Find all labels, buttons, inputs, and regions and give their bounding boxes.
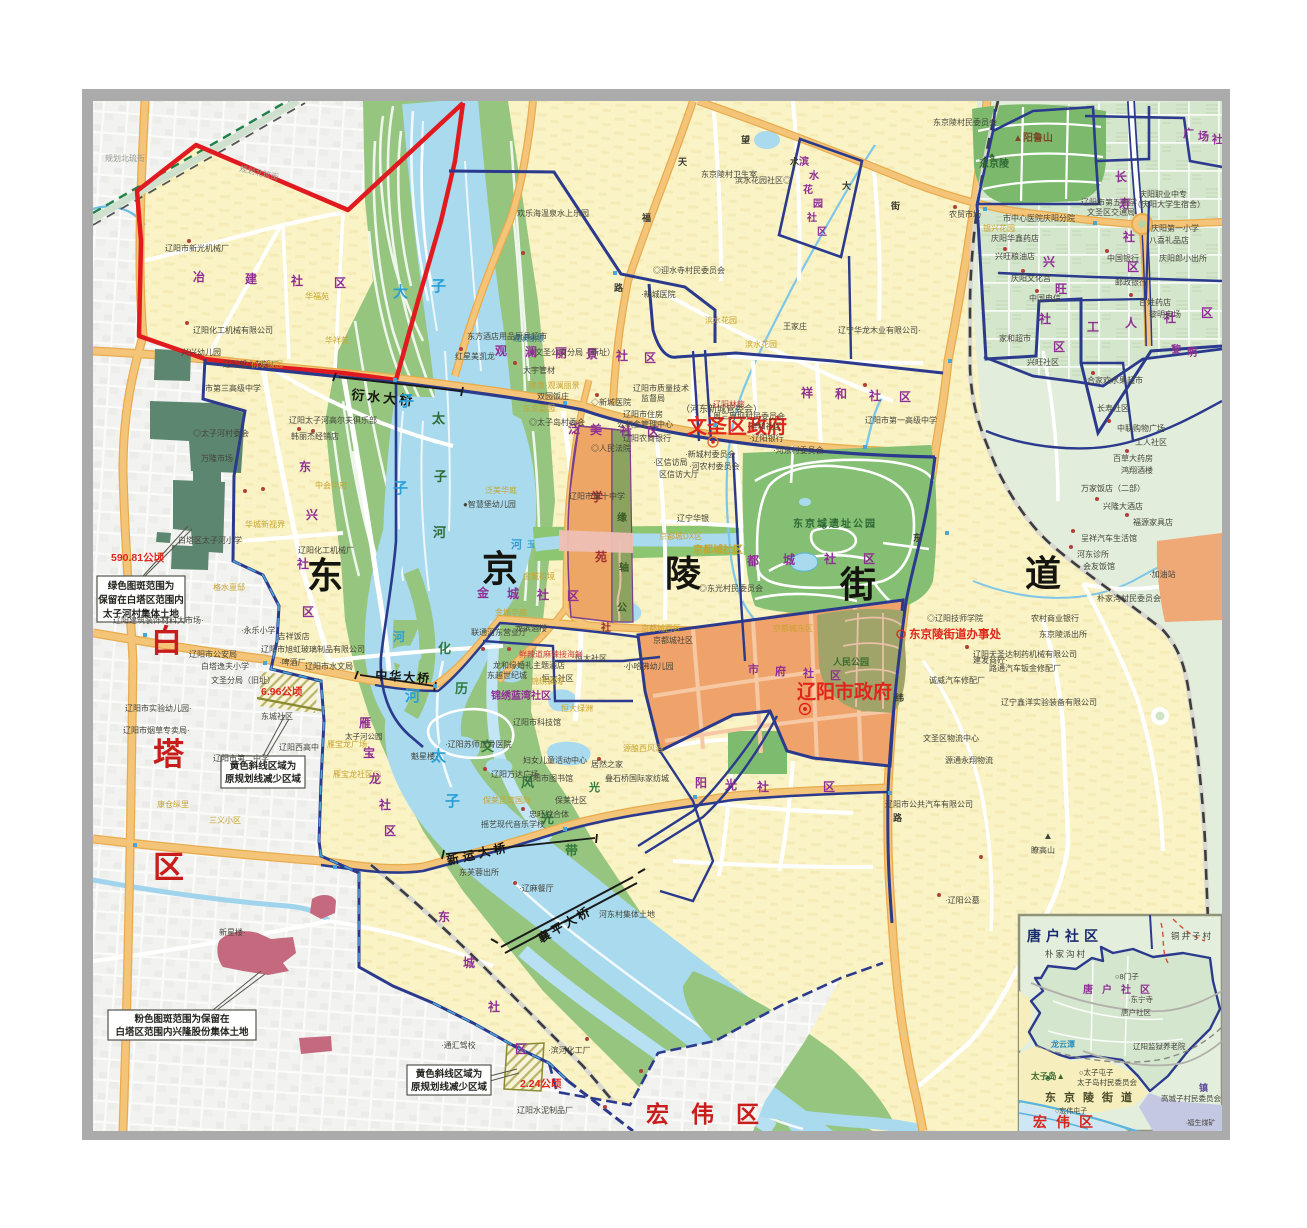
svg-text:河: 河 [433, 525, 446, 540]
svg-text:雁宝龙社区◎: 雁宝龙社区◎ [333, 769, 381, 779]
svg-text:带: 带 [565, 843, 578, 858]
svg-text:·新城医院: ·新城医院 [641, 289, 676, 299]
svg-text:长: 长 [1115, 169, 1128, 184]
svg-text:区: 区 [334, 276, 346, 290]
svg-text:欢乐海温泉水上乐园: 欢乐海温泉水上乐园 [517, 208, 589, 218]
svg-text:社: 社 [600, 621, 611, 634]
svg-text:辽阳农商银行: 辽阳农商银行 [623, 433, 671, 443]
svg-text:▲阳鲁山: ▲阳鲁山 [1013, 131, 1053, 144]
svg-text:和: 和 [834, 386, 847, 401]
svg-text:居然之家: 居然之家 [591, 759, 623, 769]
svg-text:保莱蓝湾国际: 保莱蓝湾国际 [483, 795, 531, 805]
svg-text:河: 河 [511, 537, 522, 551]
svg-text:绿色图斑范围为: 绿色图斑范围为 [108, 580, 175, 592]
svg-text:区: 区 [384, 824, 396, 838]
svg-text:社: 社 [487, 999, 500, 1014]
svg-text:辽阳化工机械厂: 辽阳化工机械厂 [298, 545, 354, 555]
svg-text:·区信访局: ·区信访局 [653, 457, 688, 467]
svg-text:590.81公顷: 590.81公顷 [111, 552, 165, 564]
svg-text:♣: ♣ [821, 521, 827, 531]
svg-text:太: 太 [431, 411, 446, 426]
svg-text:宏: 宏 [646, 1101, 669, 1127]
svg-text:水: 水 [808, 169, 820, 182]
svg-text:工: 工 [1087, 320, 1099, 334]
svg-text:6.96公顷: 6.96公顷 [261, 686, 303, 698]
svg-text:园: 园 [813, 198, 823, 210]
svg-text:街: 街 [839, 564, 876, 605]
svg-text:区: 区 [644, 351, 656, 365]
svg-text:建: 建 [244, 271, 258, 286]
svg-text:会友饭馆: 会友饭馆 [1083, 561, 1115, 571]
svg-text:庆阳华鑫药店: 庆阳华鑫药店 [991, 233, 1039, 243]
svg-text:八喜礼品店: 八喜礼品店 [1149, 235, 1189, 245]
svg-text:社: 社 [536, 587, 549, 602]
svg-text:邮政银行: 邮政银行 [1115, 277, 1147, 287]
svg-text:中国电信: 中国电信 [1029, 293, 1061, 303]
svg-text:家和超市: 家和超市 [999, 333, 1031, 343]
svg-text:场: 场 [1198, 129, 1209, 143]
svg-text:社: 社 [823, 551, 836, 566]
svg-text:辽宁华银: 辽宁华银 [677, 513, 709, 523]
svg-text:摇艺现代音乐学校: 摇艺现代音乐学校 [481, 819, 545, 829]
svg-text:·加油站: ·加油站 [1149, 569, 1176, 579]
svg-text:·辽阳公墓: ·辽阳公墓 [945, 895, 980, 905]
svg-text:三义小区: 三义小区 [209, 816, 241, 825]
svg-text:·东宁寺: ·东宁寺 [1128, 994, 1153, 1004]
svg-text:东: 东 [438, 909, 450, 924]
svg-text:金城华庭: 金城华庭 [495, 607, 527, 617]
svg-text:◎太子河村委会: ◎太子河村委会 [193, 428, 249, 438]
svg-text:京都城DX区: 京都城DX区 [659, 531, 702, 541]
svg-text:恒大绿洲: 恒大绿洲 [561, 703, 593, 713]
svg-text:中国银行: 中国银行 [1107, 253, 1139, 263]
svg-text:保留在白塔区范围内: 保留在白塔区范围内 [97, 594, 184, 606]
svg-text:东: 东 [307, 555, 343, 596]
svg-text:花: 花 [803, 183, 813, 196]
svg-text:辽阳太子河高尔夫俱乐部: 辽阳太子河高尔夫俱乐部 [289, 415, 377, 425]
svg-text:白: 白 [151, 624, 182, 659]
svg-text:辽阳市公安局: 辽阳市公安局 [189, 649, 237, 659]
svg-text:区: 区 [515, 1042, 527, 1056]
svg-text:叠石桥国际家纺城: 叠石桥国际家纺城 [605, 773, 669, 783]
svg-text:辽阳市第一高级中学: 辽阳市第一高级中学 [865, 415, 937, 425]
svg-text:冶: 冶 [193, 269, 205, 284]
svg-text:东: 东 [913, 532, 922, 543]
svg-text:河东诊所: 河东诊所 [1077, 549, 1109, 559]
svg-text:王家庄: 王家庄 [783, 321, 807, 331]
svg-text:辽阳化工机械有限公司: 辽阳化工机械有限公司 [193, 325, 273, 335]
svg-text:原规划线减少区域: 原规划线减少区域 [411, 1081, 488, 1093]
svg-text:唐户社区: 唐户社区 [1121, 1007, 1151, 1017]
svg-text:辽宁华龙木业有限公司·: 辽宁华龙木业有限公司· [838, 325, 921, 335]
svg-text:子: 子 [393, 480, 408, 497]
svg-text:百姓药店: 百姓药店 [1139, 297, 1171, 307]
svg-text:市中心医院庆阳分院: 市中心医院庆阳分院 [1003, 213, 1075, 223]
svg-text:区: 区 [899, 390, 911, 404]
svg-text:高城子村民委员会: 高城子村民委员会 [1161, 1093, 1221, 1103]
svg-text:兴隆大酒店: 兴隆大酒店 [1103, 501, 1143, 511]
svg-text:城: 城 [463, 955, 475, 970]
svg-text:农村商业银行: 农村商业银行 [1031, 613, 1079, 623]
svg-text:朴家沟村民委员会: 朴家沟村民委员会 [1097, 593, 1161, 603]
svg-text:诚威汽车修配厂: 诚威汽车修配厂 [929, 675, 985, 685]
svg-text:白塔区太子河小学: 白塔区太子河小学 [178, 535, 242, 545]
svg-text:新星楼·: 新星楼· [219, 927, 246, 937]
svg-text:区: 区 [830, 669, 841, 682]
svg-text:区: 区 [153, 850, 184, 885]
svg-text:华福苑: 华福苑 [305, 291, 329, 301]
svg-text:区: 区 [817, 226, 827, 238]
svg-text:社: 社 [290, 273, 303, 288]
svg-text:府: 府 [775, 664, 786, 678]
svg-text:白塔区范围内兴隆股份集体土地: 白塔区范围内兴隆股份集体土地 [115, 1026, 249, 1038]
svg-text:文圣区物流中心: 文圣区物流中心 [923, 733, 979, 743]
svg-text:◎人民法院: ◎人民法院 [591, 443, 631, 453]
svg-text:东越世纪城: 东越世纪城 [487, 670, 527, 680]
svg-text:大: 大 [842, 180, 851, 191]
svg-text:♣: ♣ [989, 151, 995, 161]
svg-text:华祥苑: 华祥苑 [325, 335, 349, 345]
svg-text:东京陵村民委员会: 东京陵村民委员会 [933, 117, 997, 127]
svg-text:黎: 黎 [1171, 343, 1181, 356]
svg-text:区: 区 [1201, 306, 1213, 320]
svg-text:京都城西区: 京都城西区 [641, 623, 681, 633]
svg-text:河东村集体土地: 河东村集体土地 [599, 909, 655, 919]
svg-text:纬: 纬 [895, 692, 904, 703]
svg-text:社: 社 [378, 797, 391, 812]
svg-text:镇: 镇 [1199, 1082, 1208, 1093]
svg-text:·滨河化工厂: ·滨河化工厂 [548, 1045, 591, 1055]
svg-text:化: 化 [438, 641, 451, 656]
svg-text:东京陵派出所: 东京陵派出所 [1039, 629, 1087, 639]
svg-text:锦绣蓝湾社区: 锦绣蓝湾社区 [491, 689, 551, 702]
svg-text:·辽麻餐厅: ·辽麻餐厅 [519, 883, 554, 893]
svg-text:大: 大 [393, 283, 408, 301]
svg-text:·辽阳银行: ·辽阳银行 [749, 433, 784, 443]
svg-text:·啤酒厂: ·啤酒厂 [279, 657, 306, 667]
svg-text:◎迎水寺村民委员会: ◎迎水寺村民委员会 [653, 265, 725, 275]
svg-text:中联购物广场: 中联购物广场 [1117, 423, 1165, 433]
svg-text:呈祥汽车生活馆: 呈祥汽车生活馆 [1081, 533, 1137, 543]
svg-text:♣: ♣ [1045, 1073, 1051, 1083]
svg-text:朴家沟村: 朴家沟村 [1045, 949, 1087, 959]
svg-text:大宇管材: 大宇管材 [523, 365, 555, 375]
svg-text:龙和缘婚礼主题酒店: 龙和缘婚礼主题酒店 [493, 660, 565, 670]
svg-text:社: 社 [1122, 229, 1135, 244]
svg-text:辽阳市科技馆: 辽阳市科技馆 [513, 717, 561, 727]
svg-text:辽阳市第五中学: 辽阳市第五中学 [1081, 197, 1137, 207]
svg-text:·辽阳苏师正骨医院: ·辽阳苏师正骨医院 [445, 739, 512, 749]
svg-text:滨水花园: 滨水花园 [705, 315, 737, 325]
svg-text:区: 区 [863, 552, 875, 566]
svg-text:辽阳市住房: 辽阳市住房 [623, 409, 663, 419]
svg-text:天: 天 [678, 157, 688, 167]
svg-text:韩丽杰经销店: 韩丽杰经销店 [291, 431, 339, 441]
svg-text:红星美凯龙: 红星美凯龙 [455, 351, 495, 361]
svg-text:忠旺综合体: 忠旺综合体 [529, 809, 569, 819]
svg-text:金城祖境: 金城祖境 [523, 571, 555, 581]
svg-text:庆阳第一小学: 庆阳第一小学 [1151, 223, 1199, 233]
svg-text:子: 子 [399, 393, 414, 410]
svg-text:·新城村委员会: ·新城村委员会 [685, 449, 736, 459]
svg-text:都: 都 [746, 553, 759, 568]
svg-text:粉色图斑范围为保留在: 粉色图斑范围为保留在 [134, 1013, 230, 1025]
svg-text:白塔逸夫小学: 白塔逸夫小学 [201, 661, 249, 671]
svg-text:保莱社区: 保莱社区 [555, 795, 587, 805]
svg-text:社: 社 [1038, 311, 1051, 326]
svg-text:京都城社区: 京都城社区 [653, 635, 693, 645]
svg-text:唐户社区: 唐户社区 [1027, 928, 1103, 944]
svg-text:文圣区交通局: 文圣区交通局 [1087, 207, 1135, 217]
svg-text:光: 光 [724, 777, 737, 792]
svg-text:双园饭庄: 双园饭庄 [537, 391, 569, 401]
svg-text:玉: 玉 [527, 540, 535, 549]
svg-text:泛美华庭: 泛美华庭 [485, 485, 517, 495]
svg-text:·通汇驾校: ·通汇驾校 [441, 1040, 476, 1050]
svg-text:·永乐小学: ·永乐小学 [241, 625, 276, 635]
svg-text:◎太子岛村委会: ◎太子岛村委会 [529, 417, 585, 427]
svg-text:源酿西风酒: 源酿西风酒 [623, 743, 663, 753]
svg-text:辽阳林旅: 辽阳林旅 [713, 399, 745, 409]
svg-text:社: 社 [806, 211, 817, 224]
svg-text:东芙蓉出所: 东芙蓉出所 [459, 867, 499, 877]
svg-text:城: 城 [783, 552, 795, 567]
svg-text:辽阳市政府: 辽阳市政府 [797, 680, 892, 703]
svg-text:区: 区 [567, 589, 579, 603]
svg-text:○8门子: ○8门子 [1115, 972, 1139, 981]
svg-text:辽阳市质量技术: 辽阳市质量技术 [633, 383, 689, 393]
svg-text:福: 福 [641, 212, 651, 223]
svg-text:苑: 苑 [595, 549, 607, 564]
svg-text:子: 子 [434, 469, 447, 484]
svg-text:文圣公安分局（新址）: 文圣公安分局（新址） [535, 347, 615, 357]
svg-text:伟: 伟 [691, 1101, 714, 1127]
svg-text:公: 公 [617, 602, 627, 614]
svg-text:原规划线减少区域: 原规划线减少区域 [225, 773, 302, 785]
svg-text:社: 社 [802, 666, 814, 680]
svg-text:东城社区: 东城社区 [261, 711, 293, 721]
svg-text:阳: 阳 [695, 775, 707, 790]
svg-text:庆阳文化宫: 庆阳文化宫 [1011, 273, 1051, 283]
svg-text:光: 光 [588, 780, 600, 794]
svg-text:工人社区: 工人社区 [1135, 437, 1167, 447]
svg-text:塔: 塔 [153, 737, 185, 772]
svg-text:合家欢水果超市: 合家欢水果超市 [1087, 375, 1143, 385]
svg-text:子: 子 [431, 278, 446, 295]
svg-text:辽阳市第十中学: 辽阳市第十中学 [569, 491, 625, 501]
svg-text:◎东光村民委员会: ◎东光村民委员会 [699, 583, 763, 593]
svg-text:观澜丽景: 观澜丽景 [513, 334, 545, 343]
svg-text:道: 道 [1025, 553, 1061, 594]
svg-text:东京陵街道: 东京陵街道 [1045, 1090, 1140, 1104]
svg-text:中会华府: 中会华府 [315, 480, 347, 490]
svg-text:●智慧堡幼儿园: ●智慧堡幼儿园 [463, 499, 516, 509]
svg-text:市第三高级中学: 市第三高级中学 [205, 383, 261, 393]
svg-text:陵: 陵 [665, 553, 701, 594]
svg-text:·吉祥饭店: ·吉祥饭店 [275, 631, 310, 641]
svg-text:铜井子村: 铜井子村 [1171, 931, 1213, 941]
svg-text:河: 河 [405, 687, 420, 705]
svg-text:万家饭店（二部）: 万家饭店（二部） [1081, 483, 1145, 493]
svg-text:东京城遗址公园: 东京城遗址公园 [793, 517, 877, 530]
svg-text:东: 东 [299, 459, 311, 474]
svg-text:辽阳市烟草专卖局·: 辽阳市烟草专卖局· [123, 725, 190, 735]
svg-text:庆阳职业中专: 庆阳职业中专 [1139, 189, 1187, 199]
svg-text:路: 路 [893, 812, 903, 823]
svg-text:·河农村委员会: ·河农村委员会 [689, 461, 740, 471]
svg-text:辽阳万达广场: 辽阳万达广场 [491, 769, 539, 779]
svg-text:辽阳市水文局: 辽阳市水文局 [305, 661, 353, 671]
svg-text:滨: 滨 [799, 155, 809, 168]
svg-text:源通永翔物流: 源通永翔物流 [945, 755, 993, 765]
svg-text:庆阳郎小出所: 庆阳郎小出所 [1159, 253, 1207, 263]
svg-text:人民公园: 人民公园 [832, 656, 869, 667]
svg-text:辽宁鑫洋实验装备有限公司: 辽宁鑫洋实验装备有限公司 [1001, 697, 1097, 707]
svg-text:轴: 轴 [619, 561, 629, 574]
svg-text:京都城东区: 京都城东区 [773, 623, 813, 633]
svg-text:魁星楼·: 魁星楼· [411, 751, 438, 761]
svg-text:社: 社 [296, 556, 309, 571]
svg-text:衍水馥园: 衍水馥园 [251, 359, 283, 369]
svg-text:京: 京 [482, 548, 518, 589]
svg-text:水: 水 [790, 156, 800, 167]
svg-text:辽阳西高中: 辽阳西高中 [279, 742, 319, 752]
svg-text:百草大药房: 百草大药房 [1113, 453, 1153, 463]
svg-text:·河东村委员会: ·河东村委员会 [773, 445, 824, 455]
svg-text:宏伟区: 宏伟区 [1033, 1114, 1102, 1130]
svg-text:黎明市场: 黎明市场 [1149, 309, 1181, 319]
svg-text:建发商砼·: 建发商砼· [973, 655, 1008, 665]
svg-text:妇女儿童活动中心: 妇女儿童活动中心 [523, 755, 587, 765]
svg-text:望: 望 [741, 134, 750, 145]
svg-text:兴旺粮油店: 兴旺粮油店 [995, 251, 1035, 261]
svg-text:东京陵街道办事处: 东京陵街道办事处 [909, 627, 1001, 641]
svg-text:市: 市 [748, 662, 759, 676]
svg-text:辽阳市公共汽车有限公司: 辽阳市公共汽车有限公司 [885, 799, 973, 809]
svg-text:规划北琉街: 规划北琉街 [105, 153, 145, 163]
svg-text:福源家具店: 福源家具店 [1133, 517, 1173, 527]
svg-text:辽阳建筑装饰材料大市场·: 辽阳建筑装饰材料大市场· [113, 615, 204, 625]
svg-text:周三界坝村民委员会: 周三界坝村民委员会 [713, 411, 785, 421]
svg-text:（庆阳大学生宿舍）: （庆阳大学生宿舍） [1133, 199, 1205, 209]
svg-text:辽阳水泥制品厂: 辽阳水泥制品厂 [517, 1105, 573, 1115]
svg-text:辽阳市旭虹玻璃制品有限公司: 辽阳市旭虹玻璃制品有限公司 [261, 644, 365, 654]
svg-text:缘: 缘 [617, 511, 627, 524]
svg-text:河: 河 [392, 629, 405, 644]
svg-text:格水亶邸: 格水亶邸 [213, 582, 245, 592]
svg-text:历: 历 [455, 681, 468, 696]
svg-text:辽阳市新光机械厂: 辽阳市新光机械厂 [165, 243, 229, 253]
svg-text:雁: 雁 [359, 716, 371, 730]
svg-text:社: 社 [868, 388, 881, 403]
svg-text:万隆市场: 万隆市场 [201, 453, 233, 463]
svg-text:广: 广 [1183, 126, 1194, 140]
svg-text:美: 美 [590, 422, 603, 437]
svg-text:鲜辣道麻辣接海鲜: 鲜辣道麻辣接海鲜 [519, 649, 583, 659]
svg-text:联通河东营业厅: 联通河东营业厅 [471, 627, 527, 637]
svg-text:银兴花园: 银兴花园 [983, 223, 1015, 233]
svg-text:辽阳监狱养老院: 辽阳监狱养老院 [1133, 1041, 1186, 1051]
svg-text:观: 观 [495, 344, 507, 358]
svg-text:明: 明 [1187, 347, 1197, 359]
svg-text:社: 社 [756, 779, 769, 794]
svg-text:人: 人 [1125, 315, 1138, 330]
svg-text:公积金管理中心: 公积金管理中心 [617, 419, 673, 429]
svg-text:社: 社 [1211, 132, 1222, 146]
svg-text:雁宝龙广场: 雁宝龙广场 [327, 739, 367, 749]
svg-text:·祥和社区: ·祥和社区 [747, 421, 782, 431]
svg-text:滨水花园社区◎: 滨水花园社区◎ [735, 175, 791, 185]
svg-text:兴: 兴 [306, 507, 318, 522]
svg-text:滨水花园: 滨水花园 [745, 339, 777, 349]
svg-text:区: 区 [302, 605, 314, 619]
svg-text:▲: ▲ [1043, 831, 1053, 842]
svg-text:○太子屯子: ○太子屯子 [1079, 1067, 1114, 1077]
svg-text:黄色斜线区域为: 黄色斜线区域为 [416, 1068, 483, 1080]
svg-text:东京嘉园: 东京嘉园 [523, 403, 555, 413]
svg-text:城: 城 [507, 586, 519, 601]
svg-text:区: 区 [736, 1101, 759, 1127]
svg-text:文圣分局（旧址）: 文圣分局（旧址） [211, 675, 275, 685]
svg-text:龙云潭: 龙云潭 [1050, 1039, 1075, 1049]
svg-text:京都城社区: 京都城社区 [693, 543, 743, 556]
svg-text:区: 区 [1053, 340, 1065, 354]
svg-text:子: 子 [445, 793, 460, 810]
svg-text:兴旺社区: 兴旺社区 [1027, 357, 1059, 367]
svg-text:◎辽阳技师学院: ◎辽阳技师学院 [927, 613, 983, 623]
svg-text:◇新城医院: ◇新城医院 [591, 397, 631, 407]
svg-text:太子岛村民委员会: 太子岛村民委员会 [1077, 1077, 1137, 1087]
svg-text:辽阳市第二中学: 辽阳市第二中学 [213, 753, 269, 763]
svg-text:区: 区 [823, 780, 835, 794]
svg-text:监督局: 监督局 [641, 393, 665, 403]
svg-text:2.24公顷: 2.24公顷 [520, 1078, 562, 1090]
svg-text:祥: 祥 [801, 385, 813, 400]
svg-text:路: 路 [614, 282, 624, 293]
svg-text:金: 金 [476, 585, 490, 600]
svg-text:农贸市场: 农贸市场 [949, 209, 981, 219]
svg-text:长寿社区: 长寿社区 [1097, 403, 1129, 413]
svg-text:建发·观澜丽景: 建发·观澜丽景 [529, 380, 580, 390]
svg-text:·小哈佛幼儿园: ·小哈佛幼儿园 [623, 661, 674, 671]
svg-text:·福生煤矿: ·福生煤矿 [1185, 1118, 1215, 1127]
svg-text:瞭高山: 瞭高山 [1031, 845, 1055, 855]
svg-text:鸿翔酒楼: 鸿翔酒楼 [1121, 465, 1153, 475]
svg-text:社: 社 [615, 348, 628, 363]
svg-text:辽阳市实验幼儿园·: 辽阳市实验幼儿园· [125, 703, 192, 713]
svg-text:兴兴幼儿园: 兴兴幼儿园 [181, 347, 221, 357]
svg-text:康仓纵里: 康仓纵里 [157, 799, 189, 809]
svg-text:街: 街 [890, 200, 900, 211]
svg-text:锦绣澜湾: 锦绣澜湾 [531, 676, 563, 686]
svg-text:华城新视界: 华城新视界 [245, 519, 285, 529]
svg-text:兴: 兴 [1043, 254, 1055, 269]
